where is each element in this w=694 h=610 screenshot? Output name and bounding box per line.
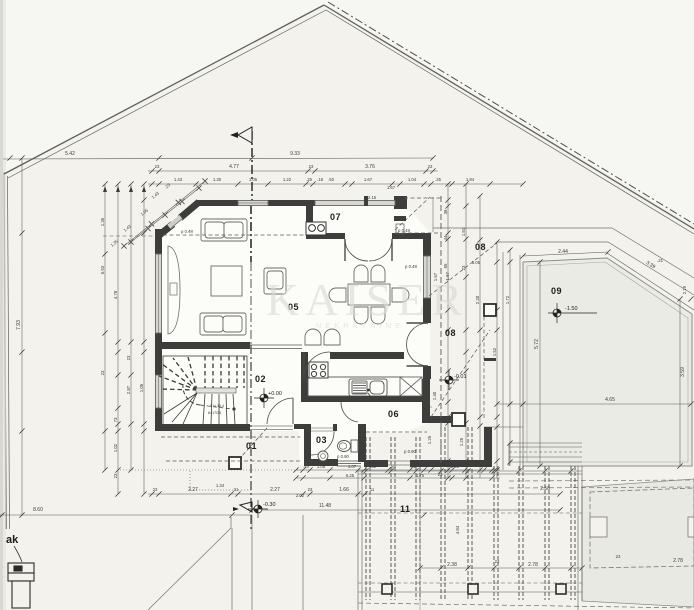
svg-text:02: 02 <box>255 374 266 384</box>
svg-text:23: 23 <box>308 487 313 492</box>
svg-text:23: 23 <box>153 487 158 492</box>
svg-text:1.43: 1.43 <box>174 177 183 182</box>
svg-text:08: 08 <box>475 242 486 252</box>
svg-text:5.42: 5.42 <box>65 151 75 157</box>
svg-text:1.22: 1.22 <box>283 177 292 182</box>
svg-text:07: 07 <box>330 212 341 222</box>
svg-text:08: 08 <box>445 328 456 338</box>
svg-text:65: 65 <box>443 263 448 268</box>
svg-text:1.05: 1.05 <box>249 177 258 182</box>
svg-text:.46: .46 <box>485 456 492 461</box>
svg-text:44: 44 <box>443 235 448 240</box>
svg-text:2.02: 2.02 <box>296 493 305 498</box>
svg-text:2.27: 2.27 <box>188 487 198 493</box>
svg-text:23: 23 <box>428 164 433 169</box>
svg-text:1.52: 1.52 <box>492 347 497 356</box>
svg-text:23: 23 <box>309 164 314 169</box>
svg-text:3.76: 3.76 <box>365 164 375 170</box>
svg-text:23: 23 <box>495 559 500 564</box>
svg-text:23: 23 <box>100 370 105 375</box>
svg-text:2.87: 2.87 <box>126 385 131 394</box>
svg-text:.50: .50 <box>328 177 335 182</box>
svg-text:1.35: 1.35 <box>100 217 105 226</box>
svg-text:1.81: 1.81 <box>461 227 466 236</box>
svg-text:1.34: 1.34 <box>216 483 225 488</box>
svg-text:p 0.90: p 0.90 <box>337 454 350 459</box>
svg-text:1.72: 1.72 <box>505 295 510 304</box>
svg-text:+0.00: +0.00 <box>268 391 282 397</box>
svg-text:2.19: 2.19 <box>682 285 687 294</box>
svg-text:9.33: 9.33 <box>290 151 300 157</box>
svg-text:4.78: 4.78 <box>113 290 118 299</box>
svg-text:7.93: 7.93 <box>16 320 22 330</box>
svg-text:4.84: 4.84 <box>455 525 460 534</box>
svg-text:-0.01: -0.01 <box>454 374 467 380</box>
svg-text:2.44: 2.44 <box>558 249 568 255</box>
svg-text:1.67: 1.67 <box>387 185 396 190</box>
svg-text:p 0.90: p 0.90 <box>404 449 417 454</box>
svg-text:-0.30: -0.30 <box>263 502 276 508</box>
svg-text:p 0.48: p 0.48 <box>181 229 194 234</box>
svg-text:-1.50: -1.50 <box>565 306 578 312</box>
svg-text:09: 09 <box>551 286 562 296</box>
svg-text:11: 11 <box>370 487 375 492</box>
svg-text:5.93: 5.93 <box>100 265 105 274</box>
svg-text:03: 03 <box>316 435 327 445</box>
svg-text:ak: ak <box>6 534 19 546</box>
svg-text:1.25: 1.25 <box>427 435 432 444</box>
svg-text:23: 23 <box>113 473 118 478</box>
svg-text:8×17/25: 8×17/25 <box>208 411 221 415</box>
svg-text:1.05: 1.05 <box>139 383 144 392</box>
svg-text:4.65: 4.65 <box>605 397 615 403</box>
svg-text:1.67: 1.67 <box>364 177 373 182</box>
svg-text:11.48: 11.48 <box>319 503 331 509</box>
svg-text:8 ¾ 16,4: 8 ¾ 16,4 <box>210 404 224 408</box>
svg-text:NEKRETNINE: NEKRETNINE <box>316 321 404 330</box>
svg-text:1.84: 1.84 <box>466 177 475 182</box>
svg-text:2.78: 2.78 <box>528 562 538 568</box>
svg-text:23: 23 <box>438 472 443 477</box>
svg-text:.21: .21 <box>657 258 664 263</box>
svg-text:1.30: 1.30 <box>213 177 222 182</box>
svg-text:KAISER: KAISER <box>266 274 468 325</box>
svg-text:2.27: 2.27 <box>270 487 280 493</box>
svg-text:2.15: 2.15 <box>368 195 377 200</box>
svg-text:21: 21 <box>234 487 239 492</box>
svg-text:5.25: 5.25 <box>346 473 355 478</box>
svg-text:.25: .25 <box>306 177 313 182</box>
svg-text:.25: .25 <box>435 177 442 182</box>
svg-text:2.20: 2.20 <box>475 295 480 304</box>
svg-text:.18: .18 <box>317 177 324 182</box>
svg-text:3.59: 3.59 <box>680 367 686 377</box>
svg-text:23: 23 <box>616 554 621 559</box>
svg-text:1.40: 1.40 <box>432 391 437 400</box>
svg-text:23: 23 <box>155 164 160 169</box>
svg-text:73: 73 <box>113 417 118 422</box>
svg-text:1.66: 1.66 <box>339 487 349 493</box>
svg-text:p 0.48: p 0.48 <box>405 264 418 269</box>
svg-text:5.72: 5.72 <box>534 339 540 349</box>
svg-text:1.04: 1.04 <box>408 177 417 182</box>
svg-text:8.60: 8.60 <box>33 507 43 513</box>
svg-text:38: 38 <box>443 209 448 214</box>
svg-text:1.02: 1.02 <box>113 443 118 452</box>
svg-text:06: 06 <box>388 409 399 419</box>
svg-text:4.77: 4.77 <box>229 164 239 170</box>
svg-text:5.06: 5.06 <box>472 260 481 265</box>
svg-text:01: 01 <box>246 441 257 451</box>
svg-text:2.38: 2.38 <box>447 562 457 568</box>
svg-text:2.56: 2.56 <box>540 486 550 492</box>
svg-text:23: 23 <box>126 355 131 360</box>
svg-text:11: 11 <box>400 504 411 514</box>
svg-text:2.78: 2.78 <box>673 558 683 564</box>
svg-text:1.25: 1.25 <box>459 437 464 446</box>
svg-text:p 0.48: p 0.48 <box>398 228 411 233</box>
